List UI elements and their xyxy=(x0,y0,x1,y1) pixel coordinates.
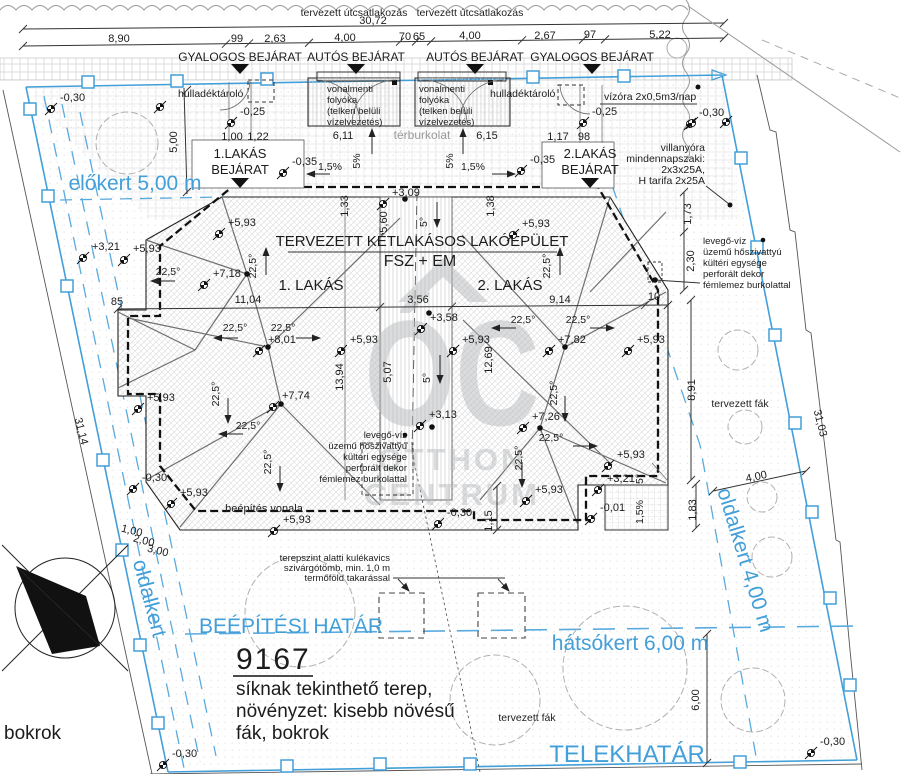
svg-text:üzemű hőszivattyú: üzemű hőszivattyú xyxy=(328,441,407,452)
elevation-label: +3,21 xyxy=(607,473,635,485)
svg-text:fémlemez burkolattal: fémlemez burkolattal xyxy=(703,280,791,291)
dimension-label: 85 xyxy=(111,296,123,308)
elevation-label: +5,93 xyxy=(637,334,665,346)
dimension-label: 31,14 xyxy=(72,416,90,446)
front-yard-label: előkert 5,00 m xyxy=(68,172,201,195)
slope-label: 22,5° xyxy=(271,322,296,334)
gutter-grate-1 xyxy=(317,72,400,81)
parcel-boundary-label: TELEKHATÁR xyxy=(549,741,705,768)
elevation-label: -0,30 xyxy=(699,107,724,119)
elevation-label: -0,01 xyxy=(600,502,625,514)
slope-label: 22,5° xyxy=(156,266,181,278)
slope-label: 22,5° xyxy=(511,314,536,326)
survey-square xyxy=(152,717,164,729)
elevation-label: +5,93 xyxy=(180,487,208,499)
dimension-label: 2,30 xyxy=(685,250,697,271)
slope-label: 22,5° xyxy=(566,314,591,326)
elevation-label: +7,18 xyxy=(213,268,241,280)
survey-square xyxy=(527,71,539,83)
entrance1-line2: BEJÁRAT xyxy=(211,162,269,177)
dimension-label: 3,56 xyxy=(407,294,428,306)
slope-label: 22,5° xyxy=(548,381,560,406)
entrance-label: AUTÓS BEJÁRAT xyxy=(307,49,405,64)
dimension-label: 98 xyxy=(578,131,590,143)
dimension-label: 5,07 xyxy=(382,361,394,382)
slope-label: 5° xyxy=(421,373,433,383)
entrance2-line2: BEJÁRAT xyxy=(561,162,619,177)
survey-square xyxy=(171,75,183,87)
dimension-label: 1,15 xyxy=(483,510,495,531)
flat2-label: 2. LAKÁS xyxy=(477,277,542,294)
elevation-label: -0,30 xyxy=(60,92,85,104)
waste-label-1: hulladéktároló xyxy=(178,88,244,100)
dimension-label: 6,00 xyxy=(690,689,702,710)
elevation-label: +5,93 xyxy=(133,243,161,255)
survey-square xyxy=(734,756,746,768)
building-subtitle: FSZ + EM xyxy=(384,253,456,270)
dimension-label: 1,33 xyxy=(339,195,351,216)
elevation-label: -0,30 xyxy=(820,736,845,748)
elevation-label: +3,13 xyxy=(429,409,457,421)
entrance-label: GYALOGOS BEJÁRAT xyxy=(178,49,302,64)
planned-trees-label-2: tervezett fák xyxy=(498,712,556,724)
dimension-label: 6,11 xyxy=(333,130,354,142)
dimension-label: 8,90 xyxy=(108,33,129,45)
dimension-label: 30,72 xyxy=(359,15,387,27)
dimension-label: 2,63 xyxy=(264,33,285,45)
ridge-node xyxy=(429,424,435,430)
dimension-label: 13,94 xyxy=(334,363,346,391)
svg-text:vízelvezetés): vízelvezetés) xyxy=(419,117,474,128)
dimension-label: 5,60 xyxy=(378,211,390,232)
dimension-label: 1,17 xyxy=(547,131,568,143)
ridge-node xyxy=(244,271,250,277)
dimension-label: 9,14 xyxy=(549,294,570,306)
elevation-label: -0,25 xyxy=(592,106,617,118)
slope-label: 22,5° xyxy=(513,446,525,471)
ridge-node xyxy=(652,277,658,283)
svg-text:perforált dekor: perforált dekor xyxy=(703,269,764,280)
dimension-label: 2,67 xyxy=(534,30,555,42)
shrubs-label: bokrok xyxy=(4,723,62,744)
elevation-label: +8,01 xyxy=(268,334,296,346)
parcel-number: 9167 xyxy=(236,643,311,676)
back-yard-label: hátsókert 6,00 m xyxy=(552,632,708,655)
slope-label: 22,5° xyxy=(539,432,564,444)
elevation-label: +5,93 xyxy=(283,514,311,526)
dimension-label: 1,83 xyxy=(687,499,699,520)
svg-text:perforált dekor: perforált dekor xyxy=(346,463,407,474)
dimension-label: 4,00 xyxy=(334,32,355,44)
dimension-label: 12,69 xyxy=(483,346,495,374)
ridge-node xyxy=(265,344,271,350)
svg-text:levegő-víz: levegő-víz xyxy=(364,430,408,441)
street-connection-label-2: tervezett útcsatlakozás xyxy=(417,7,524,19)
elevation-label: +7,26 xyxy=(532,411,560,423)
entrance1-line1: 1.LAKÁS xyxy=(214,146,267,161)
svg-text:üzemű hőszivattyú: üzemű hőszivattyú xyxy=(703,247,782,258)
elevation-label: +3,21 xyxy=(92,241,120,253)
svg-text:levegő-víz: levegő-víz xyxy=(703,236,747,247)
dimension-label: 1,22 xyxy=(247,131,268,143)
svg-text:vonalmenti: vonalmenti xyxy=(327,84,373,95)
slope-label: 1,5% xyxy=(461,161,485,173)
shaft-circle xyxy=(667,38,687,58)
ridge-node xyxy=(562,344,568,350)
survey-square xyxy=(824,592,836,604)
elevation-label: -0,35 xyxy=(530,154,555,166)
elevation-label: -0,30 xyxy=(142,472,167,484)
terrain-note-2: növényzet: kisebb növésű xyxy=(236,701,455,722)
terrain-note-1: síknak tekinthető terep, xyxy=(236,679,432,700)
slope-label: 22,5° xyxy=(236,420,261,432)
svg-text:folyóka: folyóka xyxy=(419,95,450,106)
dimension-label: 97 xyxy=(584,29,596,41)
survey-square xyxy=(97,454,109,466)
survey-square xyxy=(618,70,630,82)
elevation-label: +5,93 xyxy=(462,334,490,346)
svg-text:(telken belüli: (telken belüli xyxy=(419,106,472,117)
planned-trees-label-1: tervezett fák xyxy=(711,398,769,410)
survey-square xyxy=(844,679,856,691)
building-limit-label: BEÉPÍTÉSI HATÁR xyxy=(199,615,383,638)
svg-text:H tarifa 2x25A: H tarifa 2x25A xyxy=(638,175,705,187)
elevation-label: +5,93 xyxy=(535,484,563,496)
survey-square xyxy=(261,73,273,85)
survey-square xyxy=(134,639,146,651)
dim-tick xyxy=(802,467,810,475)
slope-label: 5° xyxy=(634,474,646,484)
dimension-label: 5,22 xyxy=(649,29,670,41)
dimension-label: 99 xyxy=(231,33,243,45)
dimension-label: 10 xyxy=(648,291,660,303)
dimension-label: 65 xyxy=(413,31,425,43)
dimension-label: 4,00 xyxy=(459,30,480,42)
survey-square xyxy=(42,190,54,202)
ridge-node xyxy=(278,401,284,407)
elevation-label: +7,74 xyxy=(282,390,310,402)
svg-text:fémlemez burkolattal: fémlemez burkolattal xyxy=(319,474,407,485)
dimension-label: 8,91 xyxy=(686,379,698,400)
svg-text:(telken belüli: (telken belüli xyxy=(327,106,380,117)
survey-square xyxy=(464,758,476,770)
elevation-label: +5,93 xyxy=(617,449,645,461)
dimension-label: 1,73 xyxy=(682,203,694,224)
slope-label: 1,5% xyxy=(318,161,342,173)
survey-square xyxy=(61,280,73,292)
slope-label: 22,5° xyxy=(541,254,553,279)
ridge-node xyxy=(426,310,432,316)
dimension-label: 6,15 xyxy=(476,130,497,142)
gutter-grate-2 xyxy=(418,72,506,81)
survey-square xyxy=(735,152,747,164)
svg-text:vonalmenti: vonalmenti xyxy=(419,84,465,95)
survey-square xyxy=(82,76,94,88)
dimension-label: 70 xyxy=(399,31,411,43)
site-plan-canvas: tervezett útcsatlakozás tervezett útcsat… xyxy=(0,0,901,774)
entrance-label: AUTÓS BEJÁRAT xyxy=(426,49,524,64)
building-title: TERVEZETT KÉTLAKÁSOS LAKÓÉPÜLET xyxy=(276,232,569,250)
elevation-label: -0,30 xyxy=(447,507,472,519)
elevation-label: +7,82 xyxy=(558,334,586,346)
elevation-label: +5,93 xyxy=(522,218,550,230)
compass xyxy=(2,545,128,671)
elevation-label: -0,35 xyxy=(292,156,317,168)
ridge-node xyxy=(402,196,408,202)
entrance-label: GYALOGOS BEJÁRAT xyxy=(530,49,654,64)
survey-square xyxy=(769,329,781,341)
elevation-label: +5,93 xyxy=(228,217,256,229)
elevation-label: +5,93 xyxy=(350,334,378,346)
slope-label: 5% xyxy=(351,153,363,168)
site-plan: tervezett útcsatlakozás tervezett útcsat… xyxy=(0,0,901,774)
terrain-note-3: fák, bokrok xyxy=(236,723,329,744)
flat1-label: 1. LAKÁS xyxy=(278,277,343,294)
elevation-label: +5,93 xyxy=(147,392,175,404)
elevation-label: +3,58 xyxy=(430,312,458,324)
slope-label: 5% xyxy=(444,153,456,168)
dimension-label: 31,03 xyxy=(811,408,829,438)
survey-square xyxy=(24,103,36,115)
elevation-label: -0,30 xyxy=(172,748,197,760)
survey-square xyxy=(281,760,293,772)
dimension-label: 11,04 xyxy=(235,294,262,306)
svg-text:folyóka: folyóka xyxy=(327,95,358,106)
slope-label: 22,5° xyxy=(262,450,274,475)
survey-square xyxy=(374,758,386,770)
dimension-label: 1,00 xyxy=(221,131,242,143)
slope-label: 22,5° xyxy=(210,382,222,407)
entrance2-line1: 2.LAKÁS xyxy=(564,146,617,161)
elevation-label: -0,25 xyxy=(240,106,265,118)
svg-text:vízelvezetés): vízelvezetés) xyxy=(327,117,382,128)
water-meter-label: vízóra 2x0,5m3/nap xyxy=(604,91,696,103)
survey-square xyxy=(806,506,818,518)
dimension-label: 5,00 xyxy=(168,131,180,152)
waste-label-2: hulladéktároló xyxy=(490,88,556,100)
survey-square xyxy=(116,544,128,556)
survey-square xyxy=(789,417,801,429)
svg-text:kültéri egysége: kültéri egysége xyxy=(343,452,407,463)
svg-text:kültéri egysége: kültéri egysége xyxy=(703,258,767,269)
paving-label: térburkolat xyxy=(394,128,451,142)
slope-label: 1,5% xyxy=(634,500,646,524)
ridge-node xyxy=(537,425,543,431)
street-connection-label-1: tervezett útcsatlakozás xyxy=(301,7,408,19)
slope-label: 5° xyxy=(418,217,430,227)
slope-label: 22,5° xyxy=(223,322,248,334)
dimension-label: 1,38 xyxy=(485,195,497,216)
svg-text:termőföld takarással: termőföld takarással xyxy=(304,573,390,584)
